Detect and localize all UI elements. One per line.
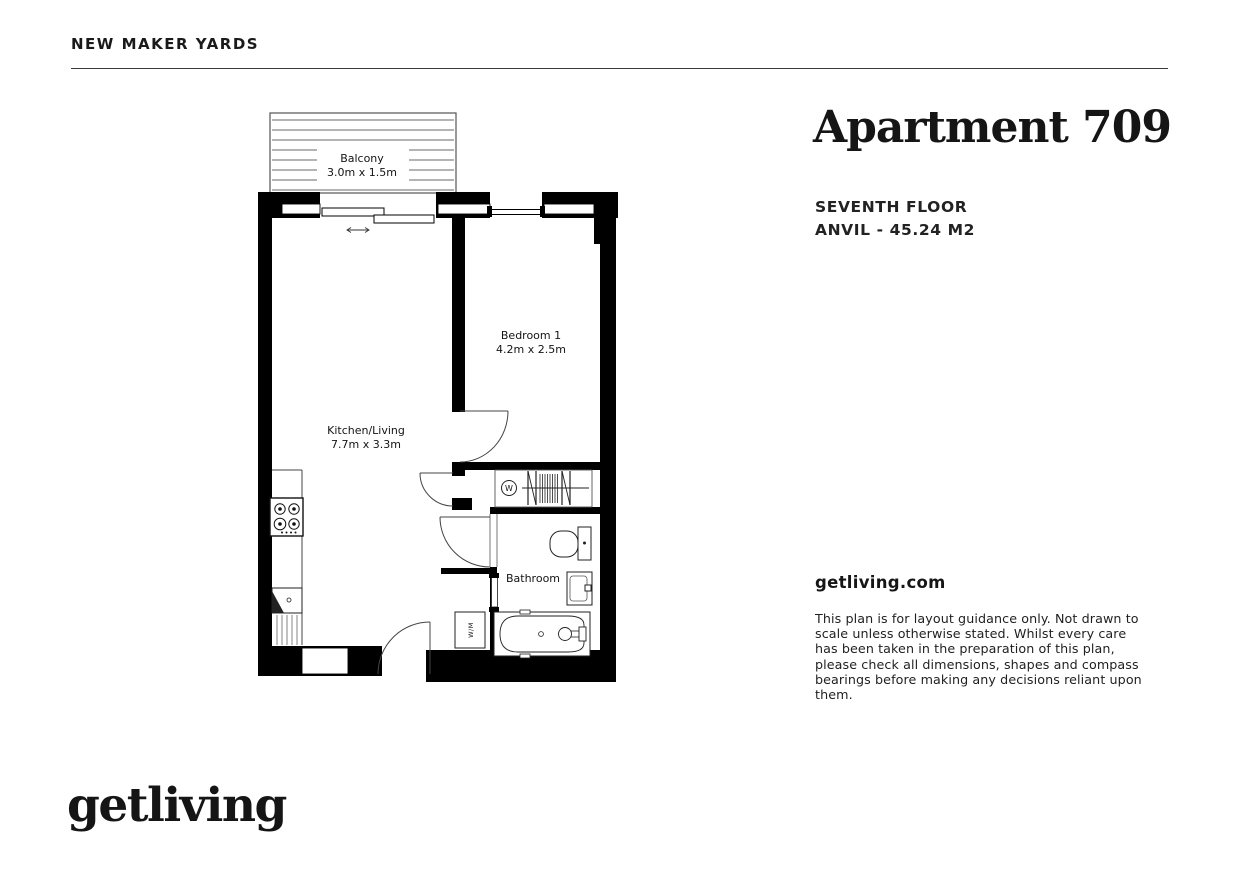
basin-icon bbox=[567, 572, 592, 605]
wall bbox=[452, 498, 472, 510]
floor-plan: Balcony 3.0m x 1.5m bbox=[240, 95, 640, 695]
sliding-balcony-door bbox=[322, 208, 434, 233]
bedroom-label: Bedroom 1 bbox=[501, 329, 561, 342]
bedroom-window bbox=[487, 206, 545, 217]
toilet-icon bbox=[550, 527, 591, 560]
wardrobe-closet: W bbox=[495, 470, 592, 507]
disclaimer-text: This plan is for layout guidance only. N… bbox=[815, 611, 1149, 702]
slide-direction-arrow bbox=[347, 228, 369, 233]
wall bbox=[258, 192, 272, 676]
apartment-subtitle: SEVENTH FLOOR ANVIL - 45.24 M2 bbox=[815, 196, 975, 242]
window-sill bbox=[282, 204, 320, 214]
block-area-label: ANVIL - 45.24 M2 bbox=[815, 219, 975, 242]
sink-icon bbox=[272, 588, 302, 645]
floor-label: SEVENTH FLOOR bbox=[815, 196, 975, 219]
wardrobe-door bbox=[420, 473, 453, 506]
apartment-title: Apartment 709 bbox=[813, 102, 1213, 153]
balcony-dimensions: 3.0m x 1.5m bbox=[327, 166, 397, 179]
kitchen-living-label: Kitchen/Living bbox=[327, 424, 405, 437]
wall bbox=[600, 192, 616, 654]
washing-machine-label: W/M bbox=[467, 622, 475, 638]
room-labels: Bedroom 1 4.2m x 2.5m Kitchen/Living 7.7… bbox=[327, 329, 566, 585]
entrance-door bbox=[378, 622, 430, 674]
wall bbox=[452, 462, 600, 470]
washer-label: W bbox=[505, 484, 513, 493]
balcony: Balcony 3.0m x 1.5m bbox=[270, 113, 456, 193]
walls bbox=[258, 192, 618, 682]
recess-panel bbox=[302, 648, 348, 674]
website-label: getliving.com bbox=[815, 573, 946, 592]
drainer-lines bbox=[277, 615, 297, 645]
bathroom-fixtures bbox=[489, 527, 592, 658]
getliving-logo: getliving bbox=[67, 778, 286, 833]
bath-icon bbox=[494, 610, 590, 658]
header-divider bbox=[71, 68, 1168, 69]
bathroom-door bbox=[440, 517, 490, 567]
window-sill bbox=[438, 204, 490, 214]
window-sill bbox=[544, 204, 594, 214]
development-name: NEW MAKER YARDS bbox=[71, 35, 259, 53]
bedroom-door bbox=[460, 411, 508, 462]
bathroom-label: Bathroom bbox=[506, 572, 560, 585]
wall bbox=[452, 218, 465, 412]
wall bbox=[441, 568, 495, 574]
bedroom-dimensions: 4.2m x 2.5m bbox=[496, 343, 566, 356]
balcony-label: Balcony bbox=[340, 152, 384, 165]
openings bbox=[282, 204, 594, 674]
kitchen-living-dimensions: 7.7m x 3.3m bbox=[331, 438, 401, 451]
wall bbox=[490, 507, 600, 514]
washing-machine-cupboard: W/M bbox=[455, 612, 485, 648]
kitchen-fixtures bbox=[270, 470, 303, 645]
hob-icon bbox=[270, 498, 303, 536]
